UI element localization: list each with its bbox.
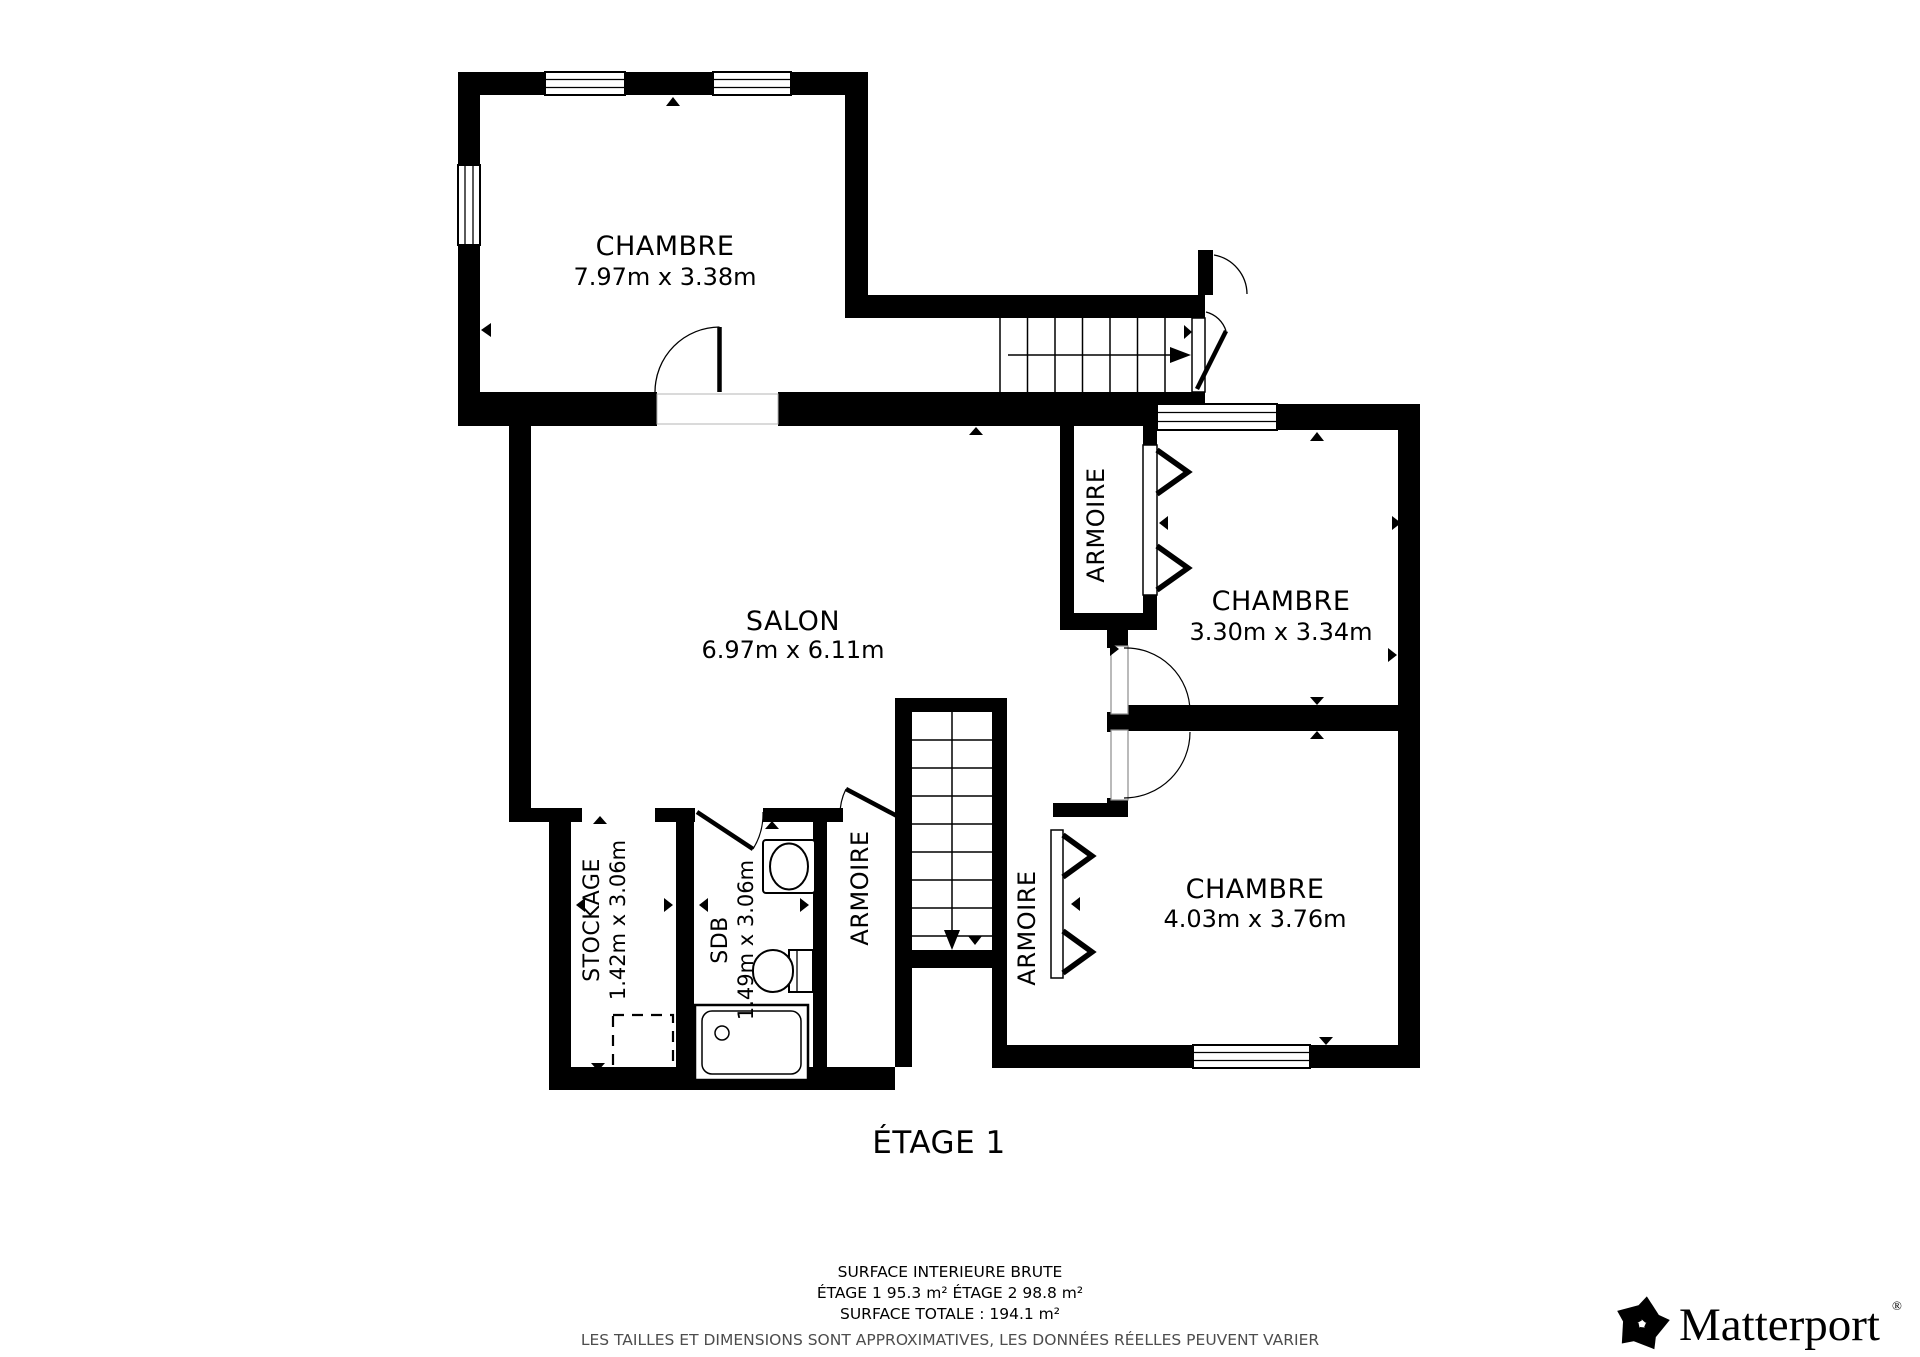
room-dims-sdb: 1.49m x 3.06m [734, 860, 758, 1020]
marker-triangle [1159, 516, 1168, 530]
stairs-lower [912, 712, 992, 950]
room-label-stockage: STOCKAGE [580, 858, 605, 982]
room-label-chambre-right: CHAMBRE [1212, 586, 1351, 617]
marker-triangle [968, 936, 982, 945]
wall-segment [458, 392, 657, 426]
wall-segment [458, 72, 480, 165]
footer-surface-title: SURFACE INTERIEURE BRUTE [838, 1263, 1063, 1281]
marker-triangle [1310, 432, 1324, 441]
wall-segment [1128, 705, 1398, 731]
wall-segment [778, 392, 1160, 426]
footer-disclaimer: LES TAILLES ET DIMENSIONS SONT APPROXIMA… [581, 1330, 1320, 1349]
room-label-armoire-right: ARMOIRE [1013, 870, 1041, 985]
marker-triangle [699, 898, 708, 912]
stairs-upper [1000, 318, 1191, 392]
wall-segment [655, 808, 695, 822]
room-label-armoire-left: ARMOIRE [846, 830, 874, 945]
marker-triangle [1071, 897, 1080, 911]
wall-segment [992, 712, 1007, 1068]
matterport-logo: Matterport ® [1605, 1289, 1902, 1357]
door-armoire-left [840, 789, 897, 816]
storage-dashed-box [613, 1015, 673, 1075]
matterport-wordmark: Matterport [1679, 1299, 1880, 1351]
wall-segment [1143, 595, 1157, 613]
stairs-up-arrow [1170, 347, 1191, 363]
room-dims-chambre-right: 3.30m x 3.34m [1189, 618, 1372, 646]
toilet [753, 950, 813, 992]
marker-triangle [765, 821, 779, 829]
marker-triangle [1388, 648, 1397, 662]
marker-triangle [800, 898, 809, 912]
floorplan-page: CHAMBRE 7.97m x 3.38m SALON 6.97m x 6.11… [0, 0, 1920, 1357]
footer-surface-floors: ÉTAGE 1 95.3 m² ÉTAGE 2 98.8 m² [817, 1283, 1083, 1302]
wall-segment [458, 245, 480, 392]
room-label-chambre-top: CHAMBRE [596, 231, 735, 262]
window-top-right [713, 72, 791, 95]
wall-segment [763, 808, 843, 822]
room-dims-chambre-top: 7.97m x 3.38m [573, 263, 756, 291]
door-sdb [697, 812, 763, 849]
wall-segment [549, 822, 571, 1090]
window-chambre-bottom [1193, 1045, 1310, 1068]
wall-segment [625, 72, 713, 95]
wall-segment [1053, 803, 1128, 817]
wall-segment [992, 1045, 1193, 1068]
room-label-salon: SALON [746, 606, 840, 637]
wall-segment [509, 808, 582, 822]
wall-segment [845, 72, 868, 318]
washing-machine [763, 840, 815, 893]
room-label-sdb: SDB [708, 916, 733, 964]
matterport-pinwheel-icon [1605, 1289, 1679, 1357]
marker-triangle [666, 97, 680, 106]
door-chambre-bottom [1111, 730, 1190, 800]
floor-title: ÉTAGE 1 [872, 1125, 1005, 1161]
wall-segment [1310, 1045, 1420, 1068]
room-dims-stockage: 1.42m x 3.06m [606, 840, 630, 1000]
window-top-left [545, 72, 625, 95]
room-label-chambre-bottom: CHAMBRE [1186, 874, 1325, 905]
wall-segment [895, 950, 1007, 968]
door-chambre-right [1111, 646, 1190, 714]
wall-segment [1060, 426, 1074, 630]
wall-segment [676, 822, 694, 1067]
floorplan-canvas: CHAMBRE 7.97m x 3.38m SALON 6.97m x 6.11… [0, 0, 1920, 1357]
marker-triangle [481, 323, 491, 337]
marker-triangle [1319, 1037, 1333, 1045]
window-left-wall [458, 165, 480, 245]
footer: SURFACE INTERIEURE BRUTE ÉTAGE 1 95.3 m²… [581, 1263, 1320, 1349]
wall-segment [1060, 613, 1157, 630]
wall-segment [1143, 426, 1157, 445]
wall-segment [895, 698, 912, 1067]
stairs-down-arrow [944, 930, 960, 950]
wall-segment [1107, 712, 1128, 732]
room-dims-salon: 6.97m x 6.11m [701, 636, 884, 664]
wall-segment [1398, 404, 1420, 1068]
wall-segment [868, 295, 1205, 318]
marker-triangle [664, 898, 673, 912]
marker-triangle [1184, 325, 1192, 339]
wall-segment [895, 698, 1007, 712]
registered-mark: ® [1892, 1298, 1902, 1313]
window-chambre-right [1157, 404, 1277, 430]
marker-triangle [593, 816, 607, 824]
room-label-armoire-top: ARMOIRE [1082, 467, 1110, 582]
wall-segment [1198, 250, 1213, 295]
marker-triangle [1310, 731, 1324, 739]
footer-surface-total: SURFACE TOTALE : 194.1 m² [840, 1305, 1060, 1323]
door-chambre-top [655, 327, 778, 424]
room-dims-chambre-bottom: 4.03m x 3.76m [1163, 905, 1346, 933]
wall-segment [509, 426, 531, 810]
marker-triangle [969, 427, 983, 435]
marker-triangle [1310, 697, 1324, 705]
